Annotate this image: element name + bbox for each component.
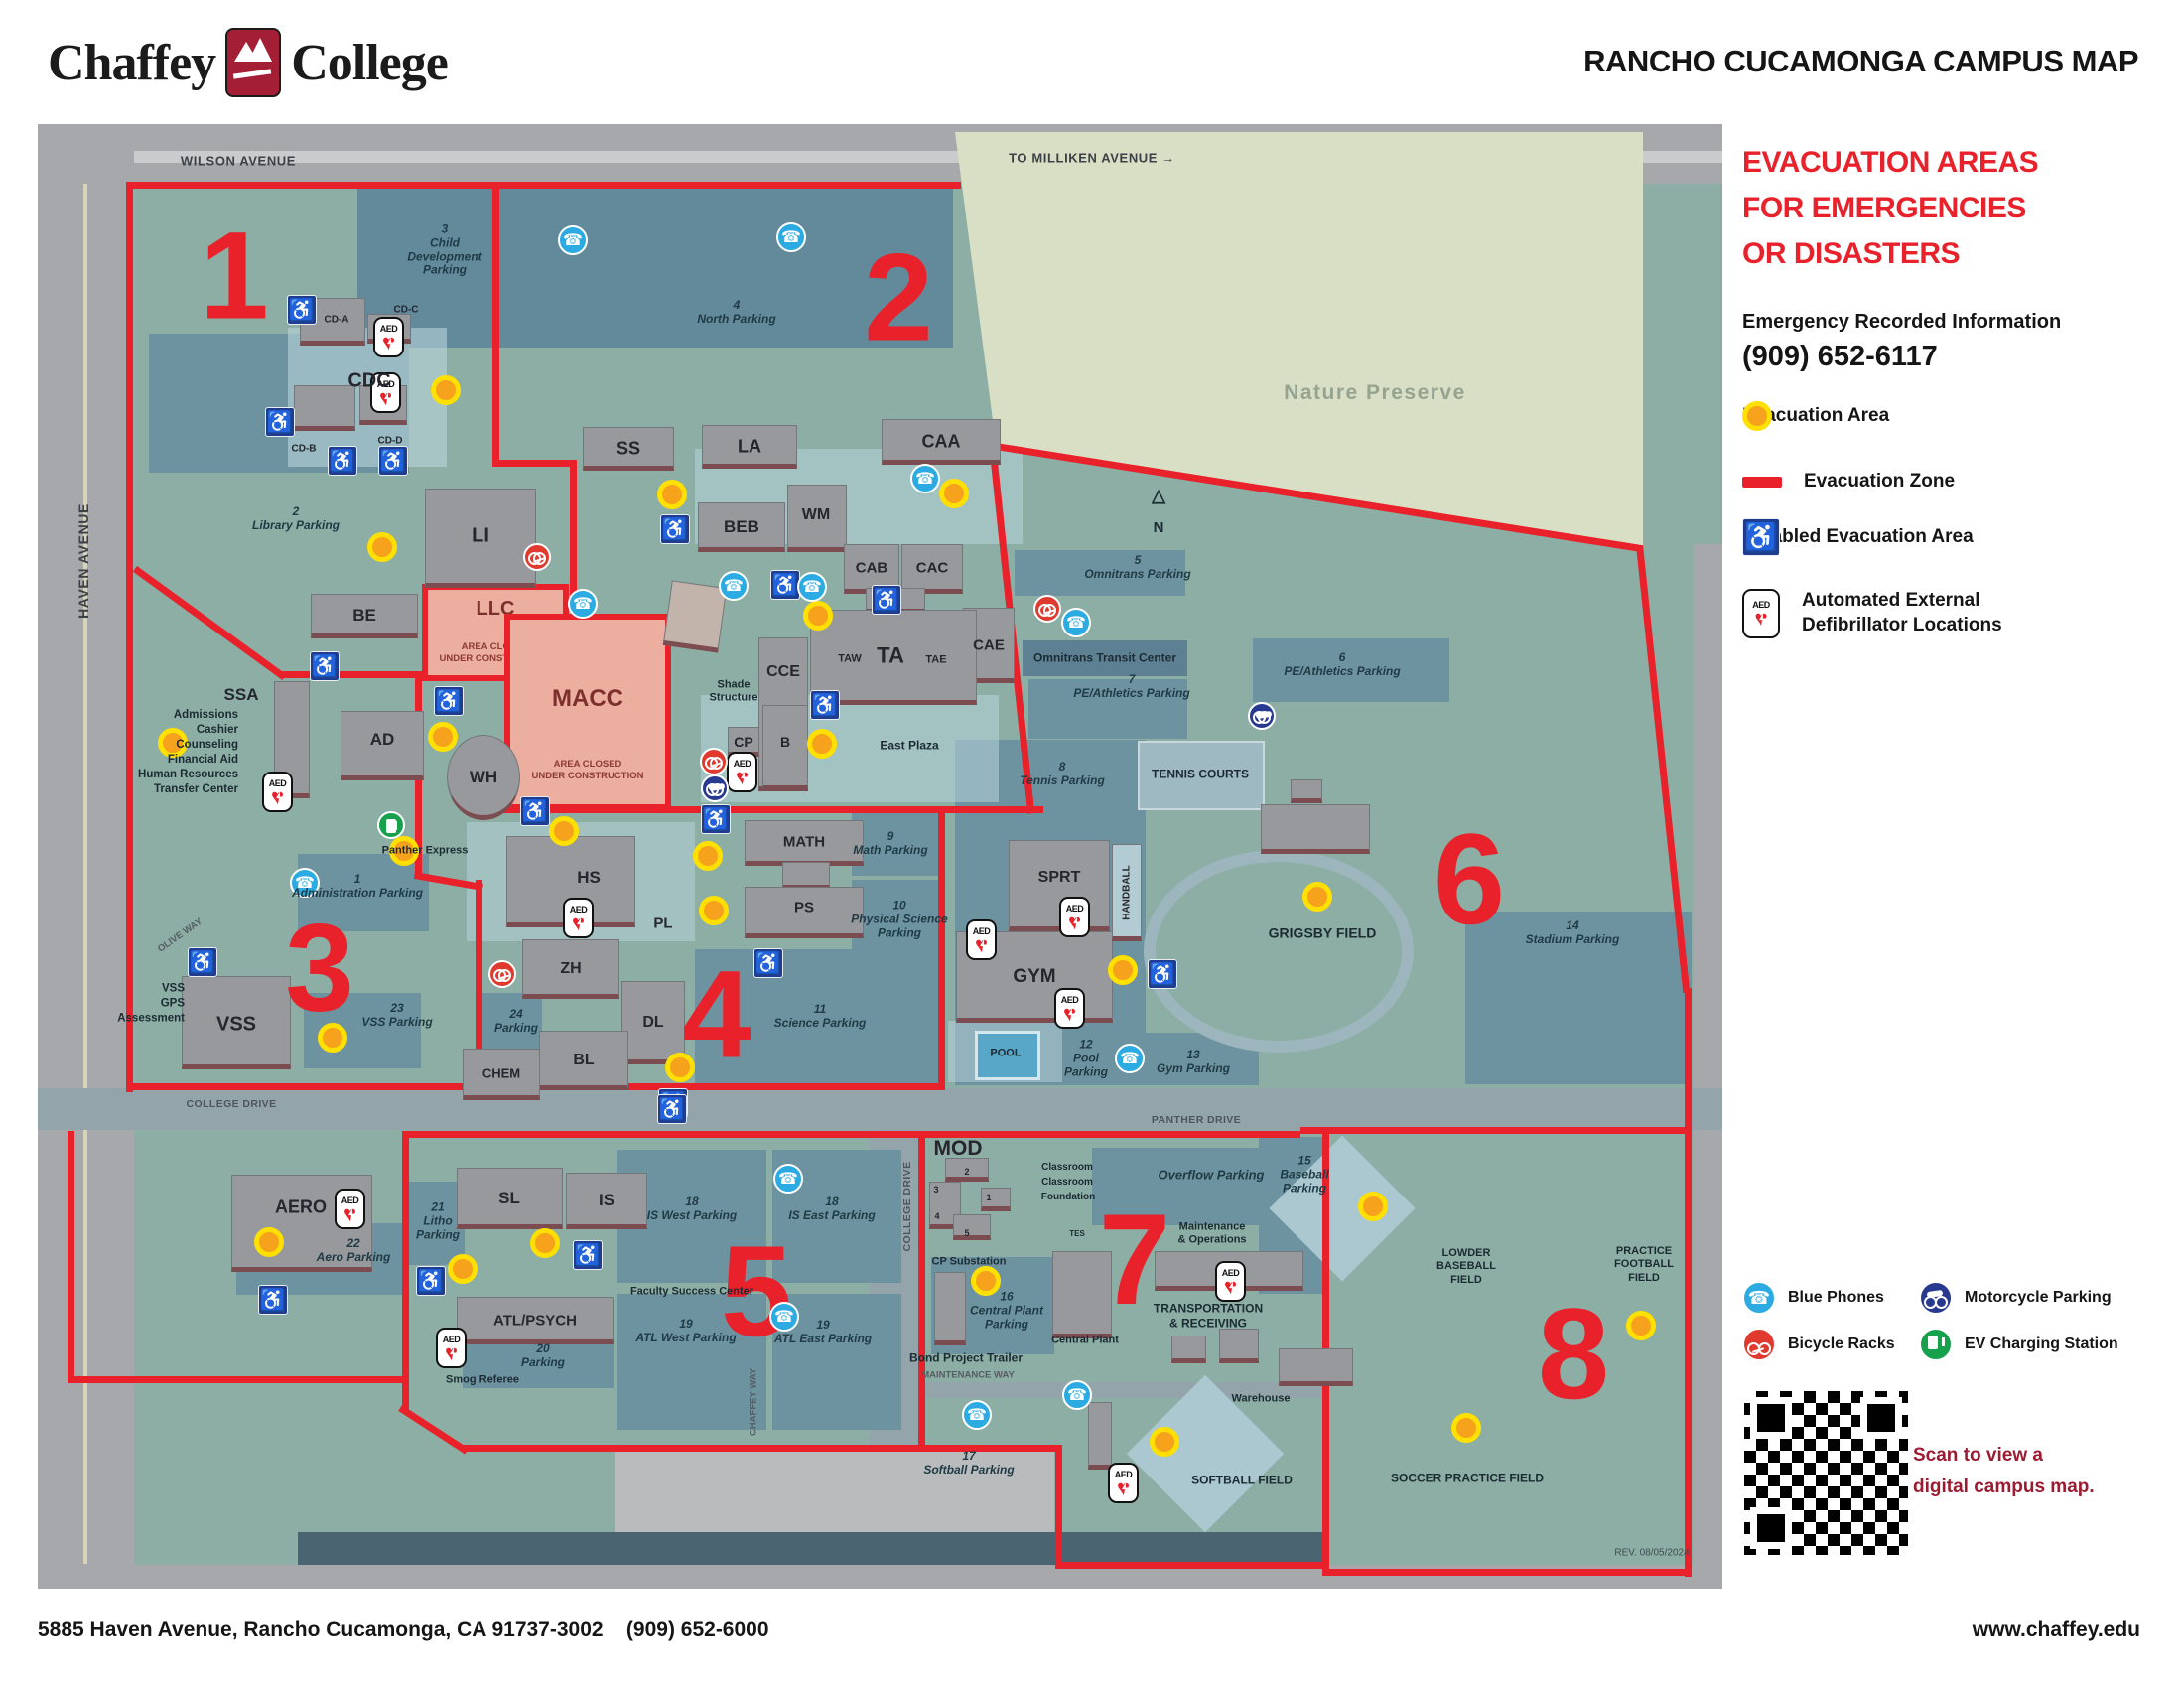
label-classroom: Classroom xyxy=(1041,1177,1093,1189)
label-to-milliken-avenue: TO MILLIKEN AVENUE → xyxy=(1009,152,1175,167)
disabled-evacuation-icon: ♿ xyxy=(434,686,464,716)
label-vss-gps-assessment: VSS GPS Assessment xyxy=(117,982,185,1027)
label-item: △ xyxy=(1152,486,1165,507)
blue-phone-icon: ☎ xyxy=(1115,1044,1145,1073)
label-hs: HS xyxy=(577,868,601,888)
label-taw: TAW xyxy=(838,653,862,666)
building-label-macc: MACC xyxy=(510,685,665,713)
evacuation-area-marker xyxy=(1626,1311,1656,1340)
building xyxy=(934,1272,966,1345)
label-panther-drive: PANTHER DRIVE xyxy=(1152,1114,1241,1126)
label-smog-referee: Smog Referee xyxy=(446,1373,519,1386)
disabled-evacuation-icon: ♿ xyxy=(573,1240,603,1270)
label-3: 3 xyxy=(933,1185,938,1195)
label-college-drive: COLLEGE DRIVE xyxy=(187,1098,277,1110)
building xyxy=(1291,779,1322,803)
label-aero: AERO xyxy=(275,1197,327,1218)
east-edge-road xyxy=(1694,544,1722,1589)
ev-charging-icon xyxy=(1919,1328,1953,1361)
label-19-atl-east-parking: 19 ATL East Parking xyxy=(774,1319,872,1346)
evacuation-zone-line xyxy=(402,1131,409,1411)
label-20-parking: 20 Parking xyxy=(521,1342,565,1370)
label-15-baseball-parking: 15 Baseball Parking xyxy=(1280,1154,1328,1195)
label-beb: BEB xyxy=(724,517,759,537)
evacuation-zone-line xyxy=(1322,1569,1692,1576)
sidebar-title-line-1: EVACUATION AREAS xyxy=(1742,146,2038,180)
footer: 5885 Haven Avenue, Rancho Cucamonga, CA … xyxy=(0,1601,2184,1688)
disabled-evacuation-icon: ♿ xyxy=(520,796,550,826)
legend-row-bicycle-racks: Bicycle Racks xyxy=(1742,1328,1895,1361)
aed-icon: AED♥ xyxy=(1059,897,1090,937)
label-pool: POOL xyxy=(990,1047,1021,1059)
zone-number-4: 4 xyxy=(682,953,751,1077)
evacuation-area-marker xyxy=(431,375,461,405)
aed-icon: AED♥ xyxy=(1054,988,1085,1029)
evacuation-zone-line xyxy=(1055,1562,1329,1569)
label-22-aero-parking: 22 Aero Parking xyxy=(317,1237,391,1265)
aed-icon: AED♥ xyxy=(966,919,997,960)
bicycle-rack-icon xyxy=(488,960,516,988)
label-1-administration-parking: 1 Administration Parking xyxy=(292,873,423,901)
evacuation-area-marker xyxy=(693,841,723,871)
evacuation-legend-panel: EVACUATION AREAS FOR EMERGENCIES OR DISA… xyxy=(1732,124,2184,1589)
label-bond-project-trailer: Bond Project Trailer xyxy=(909,1351,1023,1366)
evacuation-area-marker xyxy=(549,816,579,846)
label-19-atl-west-parking: 19 ATL West Parking xyxy=(635,1318,736,1345)
label-11-science-parking: 11 Science Parking xyxy=(774,1003,867,1031)
evacuation-area-marker xyxy=(1358,1192,1388,1221)
evacuation-area-marker xyxy=(657,480,687,509)
blue-phone-icon: ☎ xyxy=(558,225,588,255)
bicycle-rack-icon xyxy=(700,748,728,775)
evacuation-zone-line xyxy=(129,182,961,189)
label-handball: HANDBALL xyxy=(1121,865,1133,920)
ev-charging-icon xyxy=(377,811,405,839)
blue-phone-icon: ☎ xyxy=(797,572,827,602)
legend-row-aed: AED♥ Automated External Defibrillator Lo… xyxy=(1742,589,2002,638)
disabled-evacuation-icon: ♿ xyxy=(287,295,317,325)
label-dl: DL xyxy=(642,1014,663,1032)
label-13-gym-parking: 13 Gym Parking xyxy=(1157,1049,1230,1076)
disabled-evacuation-icon: ♿ xyxy=(328,446,357,476)
evacuation-area-marker xyxy=(1150,1427,1179,1457)
evacuation-area-marker xyxy=(1108,955,1138,985)
label-tes: TES xyxy=(1069,1229,1085,1239)
label-math: MATH xyxy=(783,833,825,850)
college-panther-road xyxy=(38,1088,1722,1130)
building xyxy=(663,580,728,652)
label-4-north-parking: 4 North Parking xyxy=(697,299,775,327)
aed-icon: AED♥ xyxy=(1215,1261,1246,1302)
disabled-evacuation-icon: ♿ xyxy=(872,585,901,615)
blue-phone-icon: ☎ xyxy=(1062,1380,1092,1410)
label-pl: PL xyxy=(653,914,672,931)
blue-phone-icon: ☎ xyxy=(910,464,940,493)
evacuation-area-marker xyxy=(807,729,837,759)
label-maintenance-way: MAINTENANCE WAY xyxy=(921,1371,1015,1382)
label-cp-substation: CP Substation xyxy=(932,1255,1007,1268)
label-faculty-success-center: Faculty Success Center xyxy=(630,1285,753,1298)
label-mod: MOD xyxy=(934,1137,983,1161)
haven-center-line xyxy=(83,184,87,1564)
evacuation-area-marker xyxy=(367,532,397,562)
label-atl-psych: ATL/PSYCH xyxy=(493,1312,577,1329)
label-tae: TAE xyxy=(925,654,946,667)
label-college-drive: COLLEGE DRIVE xyxy=(901,1162,913,1252)
label-overflow-parking: Overflow Parking xyxy=(1159,1169,1265,1184)
label-be: BE xyxy=(352,606,376,626)
disabled-evacuation-icon: ♿ xyxy=(753,948,783,978)
grigsby-field-track xyxy=(1144,850,1414,1053)
label-21-litho-parking: 21 Litho Parking xyxy=(416,1200,460,1241)
motorcycle-parking-icon xyxy=(1919,1281,1953,1315)
label-cae: CAE xyxy=(973,636,1005,653)
building xyxy=(782,862,830,890)
label-wm: WM xyxy=(802,506,830,524)
disabled-evacuation-icon: ♿ xyxy=(258,1285,288,1315)
zone-number-3: 3 xyxy=(285,907,354,1031)
label-la: LA xyxy=(738,437,761,458)
label-8-tennis-parking: 8 Tennis Parking xyxy=(1020,761,1105,788)
zone-number-2: 2 xyxy=(864,236,933,360)
evacuation-zone-line xyxy=(938,806,945,1090)
campus-map-page: Chaffey College RANCHO CUCAMONGA CAMPUS … xyxy=(0,0,2184,1688)
evacuation-zone-line xyxy=(463,1445,925,1452)
label-cd-d: CD-D xyxy=(378,435,403,447)
construction-area-macc: MACCAREA CLOSED UNDER CONSTRUCTION xyxy=(504,614,671,810)
label-18-is-west-parking: 18 IS West Parking xyxy=(647,1196,737,1223)
disabled-evacuation-icon: ♿ xyxy=(1148,959,1177,989)
label-3-child-development-parking: 3 Child Development Parking xyxy=(407,222,481,277)
label-24-parking: 24 Parking xyxy=(494,1008,538,1036)
evacuation-area-marker xyxy=(699,896,729,925)
label-classroom: Classroom xyxy=(1041,1162,1093,1174)
label-li: LI xyxy=(472,525,489,548)
legend-row-ev-charging: EV Charging Station xyxy=(1919,1328,2118,1361)
zone-number-6: 6 xyxy=(1433,814,1505,943)
disabled-evacuation-icon: ♿ xyxy=(378,446,408,476)
construction-note: AREA CLOSED UNDER CONSTRUCTION xyxy=(510,759,665,782)
label-east-plaza: East Plaza xyxy=(880,739,938,754)
label-admissions-cashier-counseling-fi: Admissions Cashier Counseling Financial … xyxy=(138,708,238,797)
label-practice-football-field: PRACTICE FOOTBALL FIELD xyxy=(1614,1245,1674,1285)
bicycle-rack-icon xyxy=(1033,595,1061,623)
label-1: 1 xyxy=(986,1193,991,1202)
label-bl: BL xyxy=(573,1052,594,1069)
blue-phone-icon: ☎ xyxy=(962,1400,992,1430)
building xyxy=(294,385,355,431)
label-shade-structure: Shade Structure xyxy=(710,679,758,706)
label-tennis-courts: TENNIS COURTS xyxy=(1152,768,1249,782)
building xyxy=(1171,1336,1206,1363)
label-lowder-baseball-field: LOWDER BASEBALL FIELD xyxy=(1436,1247,1496,1287)
label-maintenance-operations: Maintenance & Operations xyxy=(1177,1221,1246,1248)
label-softball-field: SOFTBALL FIELD xyxy=(1191,1474,1293,1488)
label-6-pe-athletics-parking: 6 PE/Athletics Parking xyxy=(1284,651,1400,679)
label-9-math-parking: 9 Math Parking xyxy=(853,830,927,858)
emergency-info-label: Emergency Recorded Information xyxy=(1742,311,2061,334)
website-link[interactable]: www.chaffey.edu xyxy=(1973,1618,2140,1642)
label-soccer-practice-field: SOCCER PRACTICE FIELD xyxy=(1391,1472,1544,1486)
label-5: 5 xyxy=(964,1228,969,1238)
disabled-evacuation-icon: ♿ xyxy=(770,570,800,600)
label-sprt: SPRT xyxy=(1038,869,1081,887)
label-panther-express: Panther Express xyxy=(382,844,469,857)
label-omnitrans-transit-center: Omnitrans Transit Center xyxy=(1033,651,1176,666)
label-ta: TA xyxy=(877,642,904,667)
emergency-phone-number: (909) 652-6117 xyxy=(1742,341,1938,373)
bicycle-rack-icon xyxy=(1742,1328,1776,1361)
qr-caption: Scan to view a digital campus map. xyxy=(1913,1440,2095,1504)
building xyxy=(953,1214,991,1240)
label-nature-preserve: Nature Preserve xyxy=(1284,381,1466,405)
label-transportation-receiving: TRANSPORTATION & RECEIVING xyxy=(1154,1301,1263,1330)
blue-phone-icon: ☎ xyxy=(568,589,598,619)
label-grigsby-field: GRIGSBY FIELD xyxy=(1269,924,1377,941)
disabled-evacuation-icon: ♿ xyxy=(265,407,295,437)
evacuation-zone-icon xyxy=(1742,477,1782,488)
building xyxy=(1088,1402,1112,1470)
evacuation-area-marker xyxy=(254,1227,284,1257)
label-central-plant: Central Plant xyxy=(1051,1334,1119,1346)
sidebar-title-line-2: FOR EMERGENCIES xyxy=(1742,192,2026,225)
evacuation-area-marker xyxy=(939,479,969,508)
label-ps: PS xyxy=(794,899,814,915)
blue-phone-icon: ☎ xyxy=(773,1164,803,1194)
qr-code xyxy=(1740,1387,1912,1559)
blue-phone-icon: ☎ xyxy=(776,222,806,252)
disabled-evacuation-icon: ♿ xyxy=(660,514,690,544)
label-ad: AD xyxy=(370,730,395,750)
bicycle-rack-icon xyxy=(523,543,551,571)
label-ssa: SSA xyxy=(224,685,259,705)
disabled-evacuation-icon: ♿ xyxy=(416,1266,446,1296)
sidebar-title-line-3: OR DISASTERS xyxy=(1742,237,1960,271)
aed-icon: AED♥ xyxy=(1742,589,1780,638)
disabled-evacuation-icon: ♿ xyxy=(810,690,840,720)
label-cp: CP xyxy=(734,734,752,750)
evacuation-zone-line xyxy=(1300,1127,1692,1134)
label-chem: CHEM xyxy=(482,1067,520,1082)
label-rev-08-05-2024: REV. 08/05/2024 xyxy=(1614,1547,1689,1559)
label-17-softball-parking: 17 Softball Parking xyxy=(923,1450,1014,1477)
evacuation-zone-line xyxy=(126,182,133,1092)
evacuation-area-marker xyxy=(448,1254,478,1284)
label-2-library-parking: 2 Library Parking xyxy=(252,505,340,533)
legend-row-disabled-evacuation: ♿ Disabled Evacuation Area xyxy=(1742,525,1974,550)
label-caa: CAA xyxy=(922,432,961,453)
evacuation-area-marker xyxy=(530,1228,560,1258)
label-cd-c: CD-C xyxy=(394,304,419,316)
label-4: 4 xyxy=(934,1211,939,1221)
disabled-evacuation-icon: ♿ xyxy=(310,651,340,681)
label-vss: VSS xyxy=(216,1014,256,1037)
label-cce: CCE xyxy=(766,663,800,681)
evacuation-area-marker xyxy=(318,1023,347,1053)
zone-number-8: 8 xyxy=(1538,1289,1609,1418)
evacuation-zone-line xyxy=(570,460,577,611)
blue-phone-icon: ☎ xyxy=(1742,1281,1776,1315)
legend-row-blue-phones: ☎ Blue Phones xyxy=(1742,1281,1884,1315)
label-18-is-east-parking: 18 IS East Parking xyxy=(788,1196,875,1223)
label-cac: CAC xyxy=(916,559,949,576)
evacuation-zone-line xyxy=(1055,1445,1062,1569)
zone-number-1: 1 xyxy=(200,214,269,339)
aed-icon: AED♥ xyxy=(1108,1463,1139,1503)
evacuation-zone-line xyxy=(68,1376,409,1383)
label-warehouse: Warehouse xyxy=(1232,1392,1291,1405)
label-haven-avenue: HAVEN AVENUE xyxy=(75,503,91,619)
evacuation-zone-line xyxy=(492,460,577,467)
label-cab: CAB xyxy=(856,559,888,576)
label-sl: SL xyxy=(498,1189,520,1208)
disabled-evacuation-icon: ♿ xyxy=(188,947,217,977)
label-14-stadium-parking: 14 Stadium Parking xyxy=(1526,919,1620,947)
label-foundation: Foundation xyxy=(1041,1192,1095,1203)
label-cdc: CDC xyxy=(347,370,390,393)
aed-icon: AED♥ xyxy=(373,317,404,357)
label-b: B xyxy=(780,734,790,750)
label-2: 2 xyxy=(964,1167,969,1177)
label-cd-b: CD-B xyxy=(292,443,317,455)
label-cd-a: CD-A xyxy=(325,314,349,326)
disabled-evacuation-icon: ♿ xyxy=(657,1094,687,1124)
label-zh: ZH xyxy=(560,960,581,978)
evacuation-zone-line xyxy=(918,1131,925,1452)
label-wilson-avenue: WILSON AVENUE xyxy=(181,155,296,170)
label-12-pool-parking: 12 Pool Parking xyxy=(1064,1038,1108,1078)
label-is: IS xyxy=(599,1191,614,1210)
evacuation-area-marker xyxy=(428,722,458,752)
evacuation-area-marker xyxy=(803,601,833,631)
legend-row-evacuation-zone: Evacuation Zone xyxy=(1742,470,1955,494)
evacuation-area-marker xyxy=(1451,1413,1481,1443)
label-16-central-plant-parking: 16 Central Plant Parking xyxy=(970,1290,1043,1331)
label-10-physical-science-parking: 10 Physical Science Parking xyxy=(851,899,947,939)
disabled-evacuation-icon: ♿ xyxy=(1742,518,1780,556)
evacuation-area-marker xyxy=(665,1053,695,1082)
label-n: N xyxy=(1154,519,1164,537)
label-ss: SS xyxy=(616,439,640,460)
motorcycle-parking-icon xyxy=(1248,702,1276,730)
aed-icon: AED♥ xyxy=(436,1328,467,1368)
disabled-evacuation-icon: ♿ xyxy=(701,804,731,834)
campus-address: 5885 Haven Avenue, Rancho Cucamonga, CA … xyxy=(38,1618,769,1642)
label-gym: GYM xyxy=(1013,966,1055,988)
aed-icon: AED♥ xyxy=(335,1189,365,1229)
label-7-pe-athletics-parking: 7 PE/Athletics Parking xyxy=(1073,673,1189,701)
label-5-omnitrans-parking: 5 Omnitrans Parking xyxy=(1084,554,1190,582)
building xyxy=(1219,1329,1259,1363)
evacuation-zone-line xyxy=(281,671,422,678)
label-chaffey-way: CHAFFEY WAY xyxy=(750,1368,760,1436)
legend-row-motorcycle-parking: Motorcycle Parking xyxy=(1919,1281,2112,1315)
aed-icon: AED♥ xyxy=(727,752,757,792)
building xyxy=(1279,1348,1353,1386)
blue-phone-icon: ☎ xyxy=(1061,608,1091,637)
label-23-vss-parking: 23 VSS Parking xyxy=(361,1002,432,1030)
label-wh: WH xyxy=(470,768,497,787)
evacuation-area-marker xyxy=(1302,882,1332,912)
evacuation-zone-line xyxy=(68,1131,74,1382)
blue-phone-icon: ☎ xyxy=(719,571,749,601)
evacuation-zone-line xyxy=(402,1131,1300,1138)
motorcycle-parking-icon xyxy=(701,774,729,802)
aed-icon: AED♥ xyxy=(563,898,594,938)
building xyxy=(1261,804,1370,854)
evacuation-zone-line xyxy=(492,182,499,467)
legend-row-evacuation-area: Evacuation Area xyxy=(1742,404,1889,429)
evacuation-zone-line xyxy=(1685,988,1692,1577)
aed-icon: AED♥ xyxy=(262,772,293,812)
